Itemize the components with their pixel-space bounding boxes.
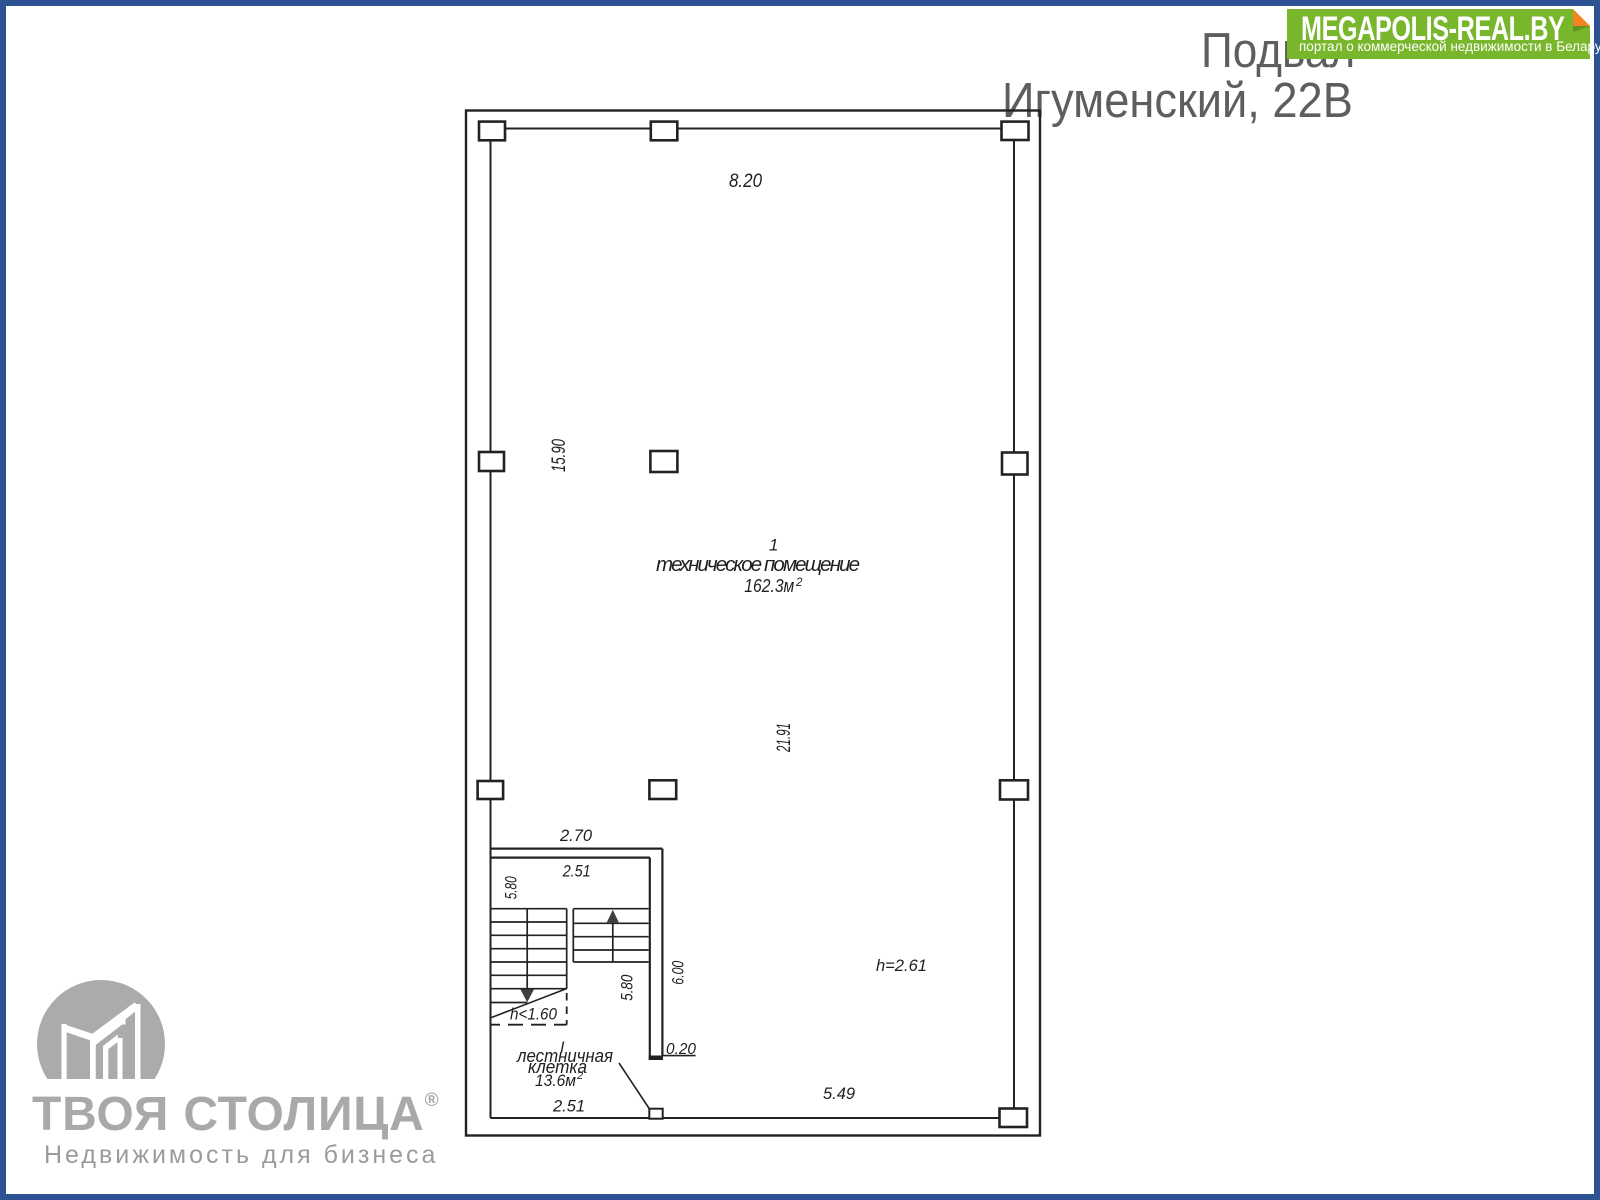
svg-text:h<1.60: h<1.60 <box>510 1005 558 1023</box>
svg-text:2.51: 2.51 <box>552 1098 585 1116</box>
svg-text:8.20: 8.20 <box>729 171 762 192</box>
svg-text:2: 2 <box>576 1070 583 1082</box>
svg-text:h=2.61: h=2.61 <box>876 957 927 975</box>
svg-text:13.6м: 13.6м <box>535 1072 576 1090</box>
svg-text:техническое помещение: техническое помещение <box>656 553 860 576</box>
svg-text:2.51: 2.51 <box>562 863 591 881</box>
svg-text:21.91: 21.91 <box>774 723 795 753</box>
svg-text:2: 2 <box>795 577 803 589</box>
svg-text:5.80: 5.80 <box>619 974 637 1001</box>
svg-text:162.3м: 162.3м <box>744 575 794 596</box>
svg-text:5.49: 5.49 <box>823 1085 855 1103</box>
svg-text:0.20: 0.20 <box>666 1041 696 1058</box>
svg-text:1: 1 <box>769 536 778 555</box>
svg-text:5.80: 5.80 <box>503 876 521 900</box>
svg-text:6.00: 6.00 <box>670 960 688 985</box>
svg-text:15.90: 15.90 <box>549 439 570 472</box>
svg-text:2.70: 2.70 <box>559 827 593 845</box>
